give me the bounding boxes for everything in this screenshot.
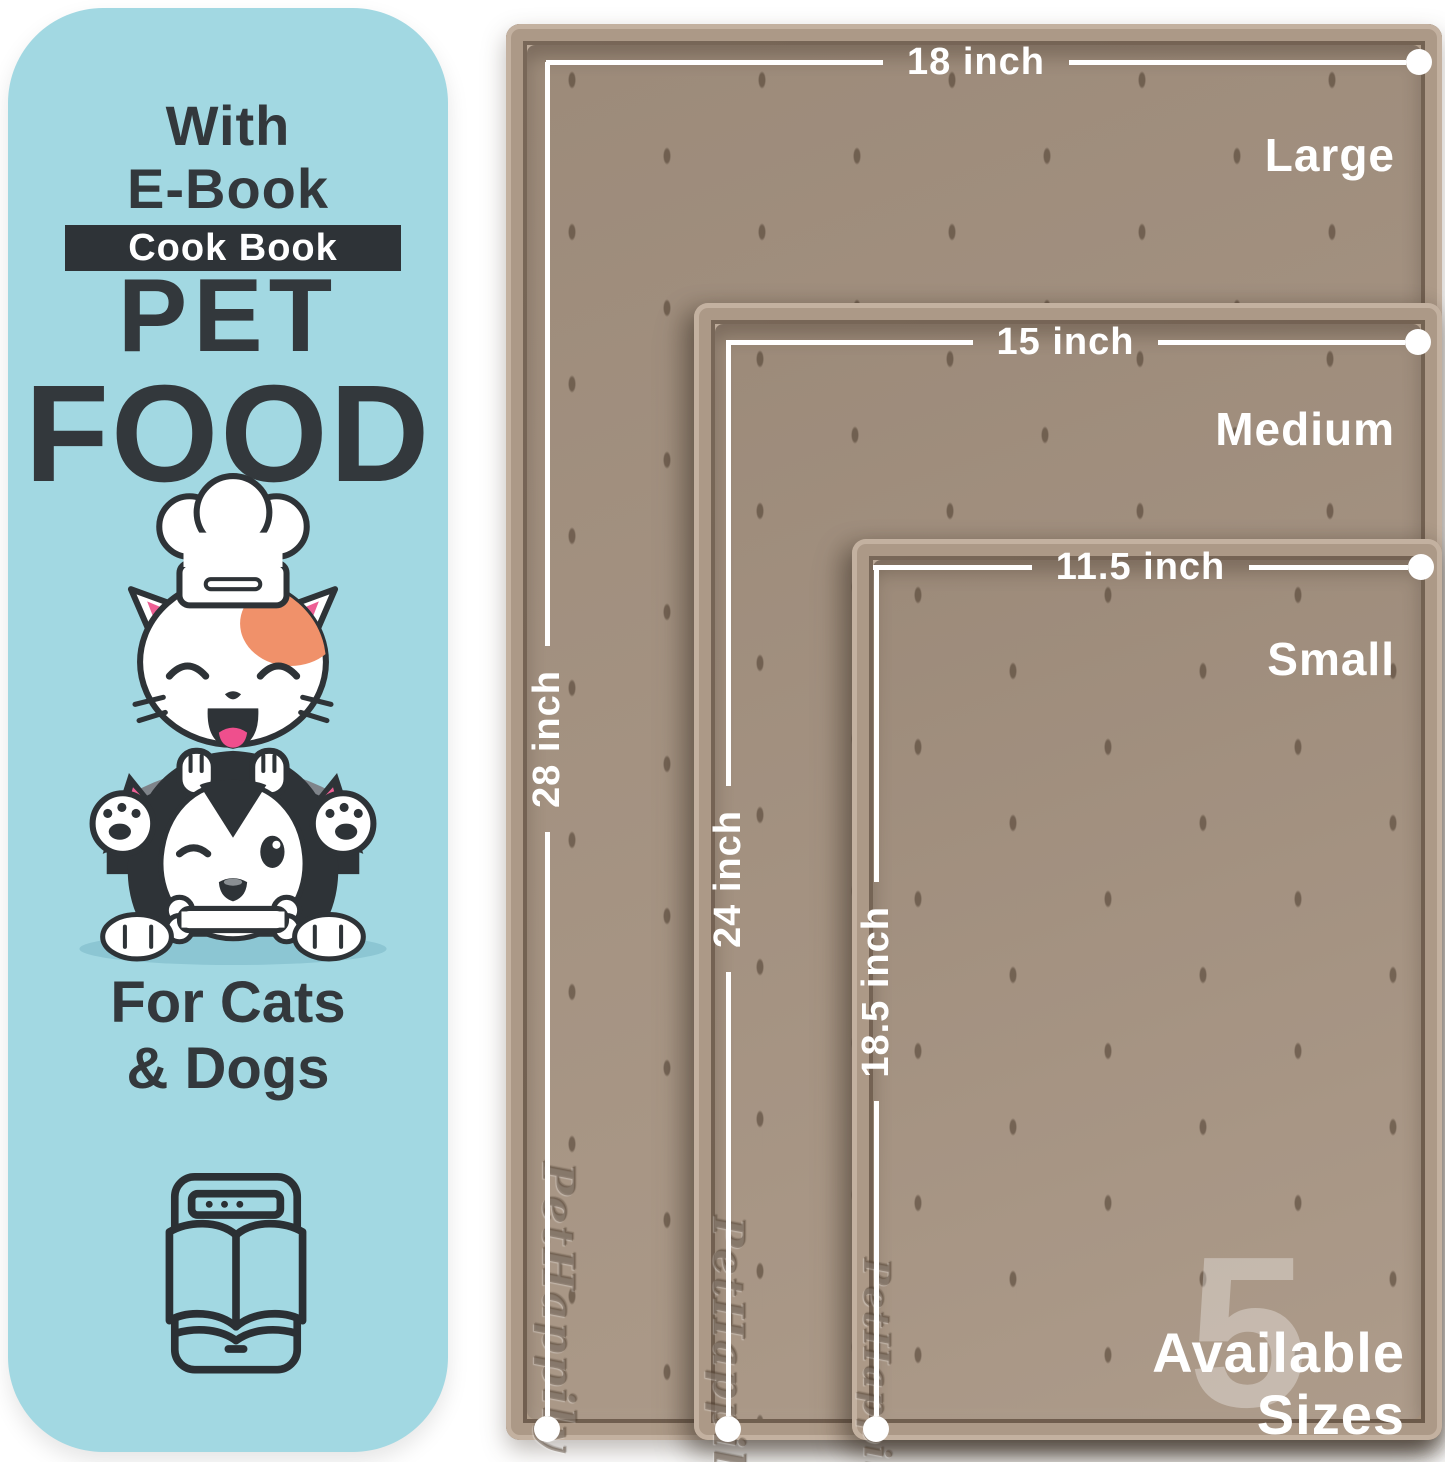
audience-text: For Cats & Dogs — [8, 970, 448, 1102]
toolbar-dots — [206, 1201, 243, 1208]
width-label-large: 18 inch — [883, 41, 1069, 84]
ebook-callout-line2: E-Book — [8, 157, 448, 220]
available-sizes-line2: Sizes — [1152, 1384, 1405, 1446]
width-dimension-small: 11.5 inch — [873, 543, 1434, 591]
audience-text-line2: & Dogs — [8, 1036, 448, 1102]
width-dimension-large: 18 inch — [546, 38, 1432, 86]
size-label-large: Large — [1265, 128, 1395, 182]
dimension-line-segment — [545, 62, 550, 646]
size-label-small: Small — [1267, 632, 1395, 686]
audience-text-line1: For Cats — [8, 970, 448, 1036]
tablet-toolbar — [192, 1194, 281, 1215]
page-curve-right — [236, 1330, 295, 1341]
home-button — [225, 1345, 248, 1353]
dimension-line-segment — [874, 1101, 879, 1416]
ebook-callout: With E-Book — [8, 94, 448, 220]
dimension-line-segment — [1249, 565, 1408, 570]
dimension-line-segment — [1158, 340, 1405, 345]
height-label-large: 28 inch — [526, 646, 569, 832]
dimension-line-segment — [726, 342, 731, 786]
page-title-line1: PET — [8, 260, 448, 372]
dimension-endpoint-dot — [534, 1416, 560, 1442]
left-info-panel: With E-Book Cook Book PET FOOD — [8, 8, 448, 1452]
height-label-medium: 24 inch — [707, 786, 750, 972]
mat-small-surface — [873, 560, 1421, 1419]
available-sizes-line1: Available — [1152, 1322, 1405, 1384]
dimension-line-segment — [545, 832, 550, 1416]
dimension-endpoint-dot — [1406, 49, 1432, 75]
dimension-line-segment — [546, 60, 883, 65]
height-dimension-small: 18.5 inch — [851, 567, 901, 1442]
size-label-medium: Medium — [1215, 402, 1395, 456]
page-title: PET FOOD — [8, 260, 448, 496]
dimension-line-segment — [726, 972, 731, 1416]
dimension-endpoint-dot — [863, 1416, 889, 1442]
ebook-icon — [148, 1170, 324, 1378]
dimension-endpoint-dot — [715, 1416, 741, 1442]
width-dimension-medium: 15 inch — [726, 318, 1431, 366]
width-label-medium: 15 inch — [973, 321, 1159, 364]
dimension-endpoint-dot — [1405, 329, 1431, 355]
dimension-line-segment — [874, 567, 879, 882]
height-dimension-large: 28 inch — [522, 62, 572, 1442]
product-size-infographic: With E-Book Cook Book PET FOOD — [0, 0, 1445, 1462]
height-dimension-medium: 24 inch — [703, 342, 753, 1442]
dimension-line-segment — [726, 340, 973, 345]
dimension-endpoint-dot — [1408, 554, 1434, 580]
page-curve-left — [177, 1330, 236, 1341]
height-label-small: 18.5 inch — [855, 882, 898, 1102]
available-sizes-label: Available Sizes — [1152, 1322, 1405, 1446]
cat-dog-chef-illustration — [63, 470, 403, 965]
chef-hat-icon — [159, 476, 306, 605]
width-label-small: 11.5 inch — [1032, 546, 1250, 589]
ebook-callout-line1: With — [8, 94, 448, 157]
dimension-line-segment — [1069, 60, 1406, 65]
